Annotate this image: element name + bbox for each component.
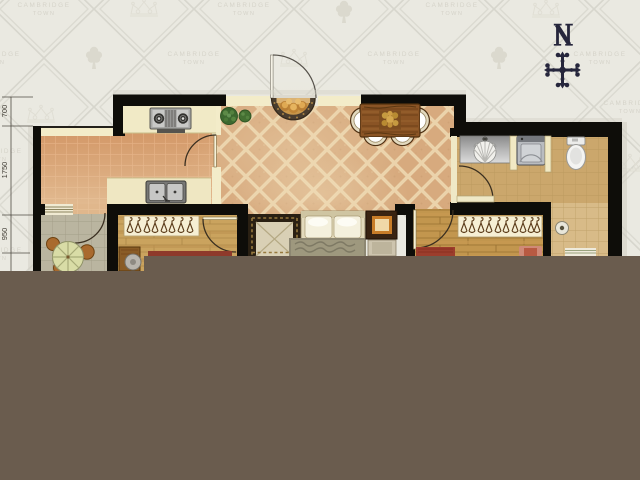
svg-text:950: 950: [0, 228, 9, 241]
svg-text:700: 700: [0, 105, 9, 118]
svg-text:1750: 1750: [0, 162, 9, 179]
